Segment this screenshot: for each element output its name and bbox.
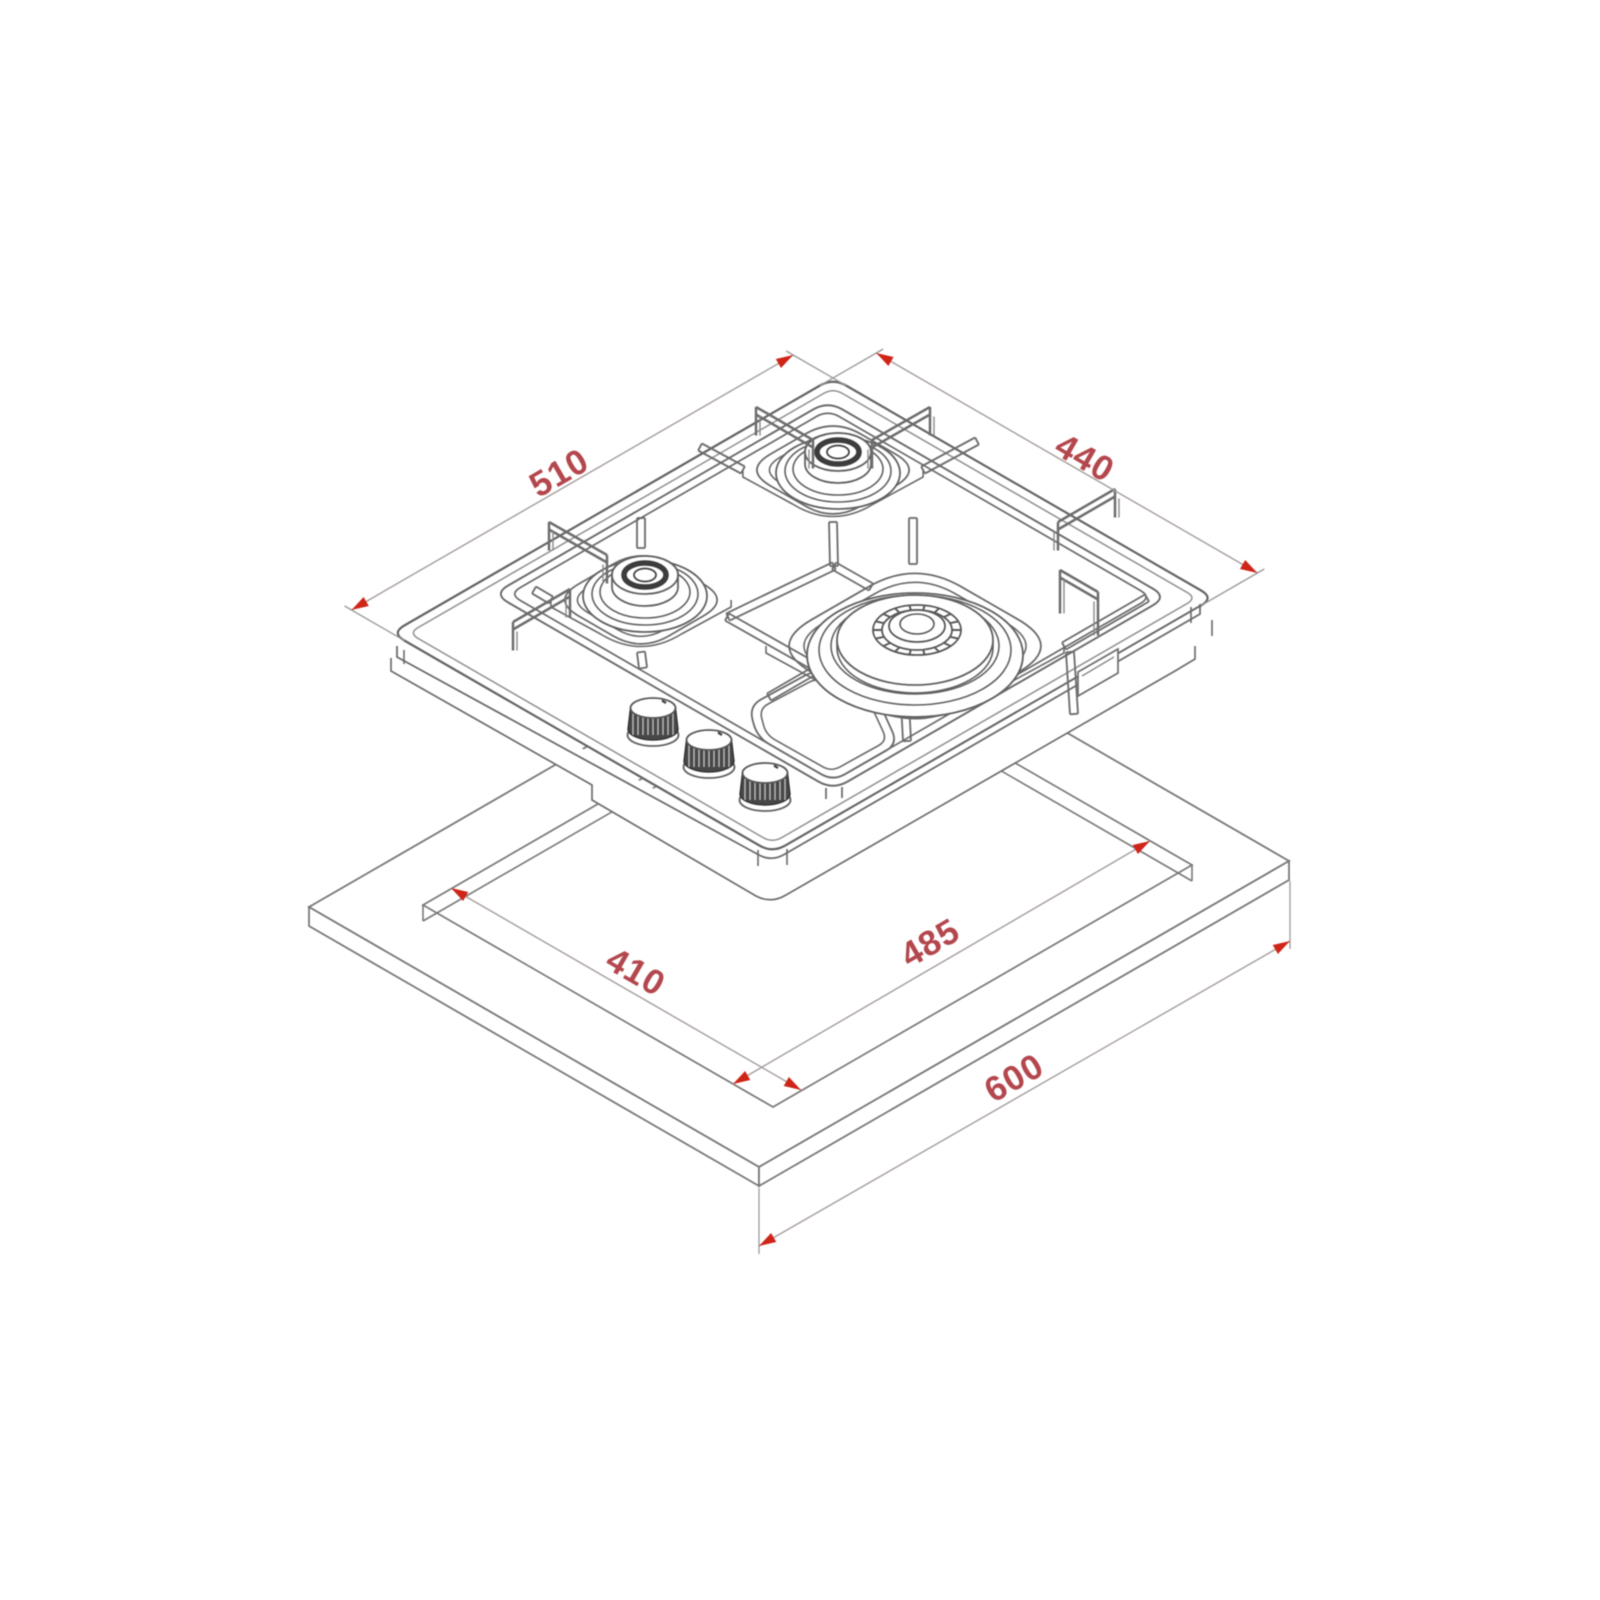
svg-text:440: 440 — [1048, 426, 1121, 490]
svg-text:510: 510 — [523, 441, 596, 505]
svg-text:600: 600 — [978, 1046, 1051, 1110]
